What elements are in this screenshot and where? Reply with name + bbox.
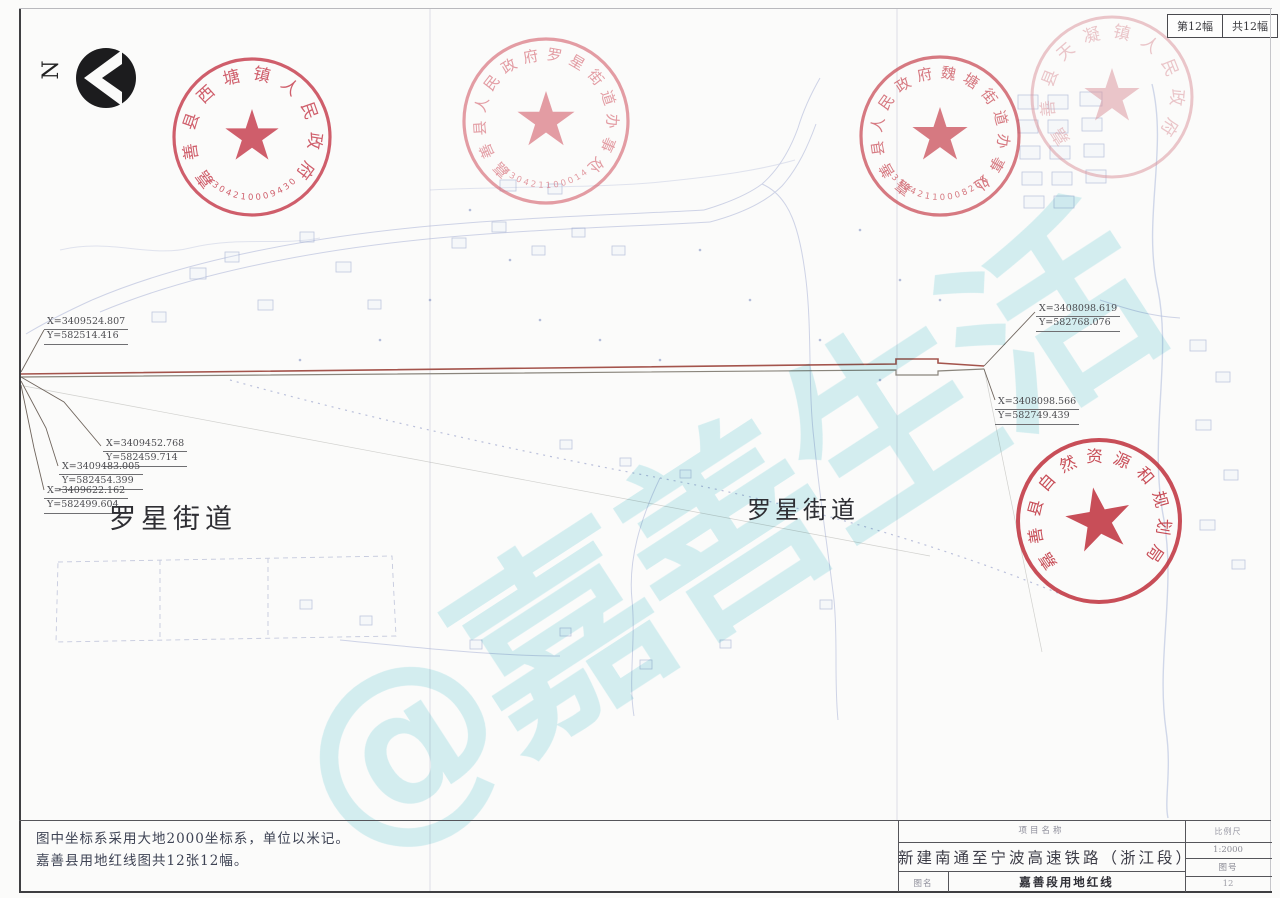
coord-x: X=3409452.768 xyxy=(103,438,187,452)
seal-star-icon xyxy=(912,107,967,159)
titleblock-scale-label: 比例尺 xyxy=(1185,826,1271,837)
north-arrow: N xyxy=(39,48,136,108)
titleblock-sheetno-label: 图号 xyxy=(1185,861,1271,873)
titleblock-drawing-name: 嘉善段用地红线 xyxy=(948,874,1185,890)
seal-star-icon xyxy=(225,109,278,160)
titleblock-sheetno-value: 12 xyxy=(1185,879,1271,889)
coord-y: Y=582768.076 xyxy=(1036,317,1120,331)
titleblock-h2 xyxy=(898,871,1185,872)
frame-bottom xyxy=(19,891,1272,893)
titleblock-h4 xyxy=(1185,876,1272,877)
official-seal-weitang: 嘉善县人民政府魏塘街道办事处 33042110008268 xyxy=(861,57,1019,215)
district-label-luoxing-west: 罗星街道 xyxy=(109,497,237,536)
coord-label: X=3409524.807 Y=582514.416 xyxy=(44,316,128,345)
titleblock-project-name: 新建南通至宁波高速铁路（浙江段） xyxy=(898,846,1185,868)
map-notes: 图中坐标系采用大地2000坐标系，单位以米记。 嘉善县用地红线图共12张12幅。 xyxy=(36,828,350,873)
coord-y: Y=582749.439 xyxy=(995,410,1079,424)
seal-star-icon xyxy=(1061,482,1135,554)
frame-right xyxy=(1270,8,1271,893)
seal-number: 330421100014 xyxy=(500,166,591,191)
sheet-number-total: 共12幅 xyxy=(1223,15,1277,37)
titleblock-drawing-label: 图名 xyxy=(898,877,948,889)
note-line-2: 嘉善县用地红线图共12张12幅。 xyxy=(36,850,350,872)
note-line-1: 图中坐标系采用大地2000坐标系，单位以米记。 xyxy=(36,828,350,850)
official-seal-xitang: 嘉善县西塘镇人民政府 3304210009430 xyxy=(174,59,330,215)
coord-y: Y=582514.416 xyxy=(44,330,128,344)
seal-star-icon xyxy=(1084,68,1139,120)
svg-text:330421100014: 330421100014 xyxy=(500,166,591,191)
titleblock-h1 xyxy=(898,842,1272,843)
official-seal-luoxing: 嘉善县人民政府罗星街道办事处 330421100014 xyxy=(464,39,628,203)
titleblock-project-label: 项目名称 xyxy=(898,824,1185,836)
titleblock-h3 xyxy=(1185,858,1272,859)
frame-left xyxy=(19,8,21,893)
north-label: N xyxy=(39,60,64,79)
sheet-number-badge: 第12幅 共12幅 xyxy=(1167,14,1278,38)
frame-top xyxy=(19,8,1272,9)
redline-map-sheet: @嘉善生活 N 嘉善县西塘镇人民政府 xyxy=(0,0,1280,898)
titleblock-scale-value: 1:2000 xyxy=(1185,845,1271,855)
coord-label: X=3408098.566 Y=582749.439 xyxy=(995,396,1079,425)
coord-x: X=3408098.619 xyxy=(1036,303,1120,317)
coord-label: X=3408098.619 Y=582768.076 xyxy=(1036,303,1120,332)
coord-x: X=3408098.566 xyxy=(995,396,1079,410)
sheet-number-current: 第12幅 xyxy=(1168,15,1223,37)
titleblock-top-line xyxy=(19,820,1271,821)
coord-x: X=3409483.005 xyxy=(59,461,143,475)
seal-star-icon xyxy=(517,91,574,145)
district-label-luoxing-center: 罗星街道 xyxy=(747,490,859,525)
overlay-layer: N 嘉善县西塘镇人民政府 3304210009430 嘉善县人民政府罗星街道办事… xyxy=(0,0,1280,898)
coord-x: X=3409524.807 xyxy=(44,316,128,330)
